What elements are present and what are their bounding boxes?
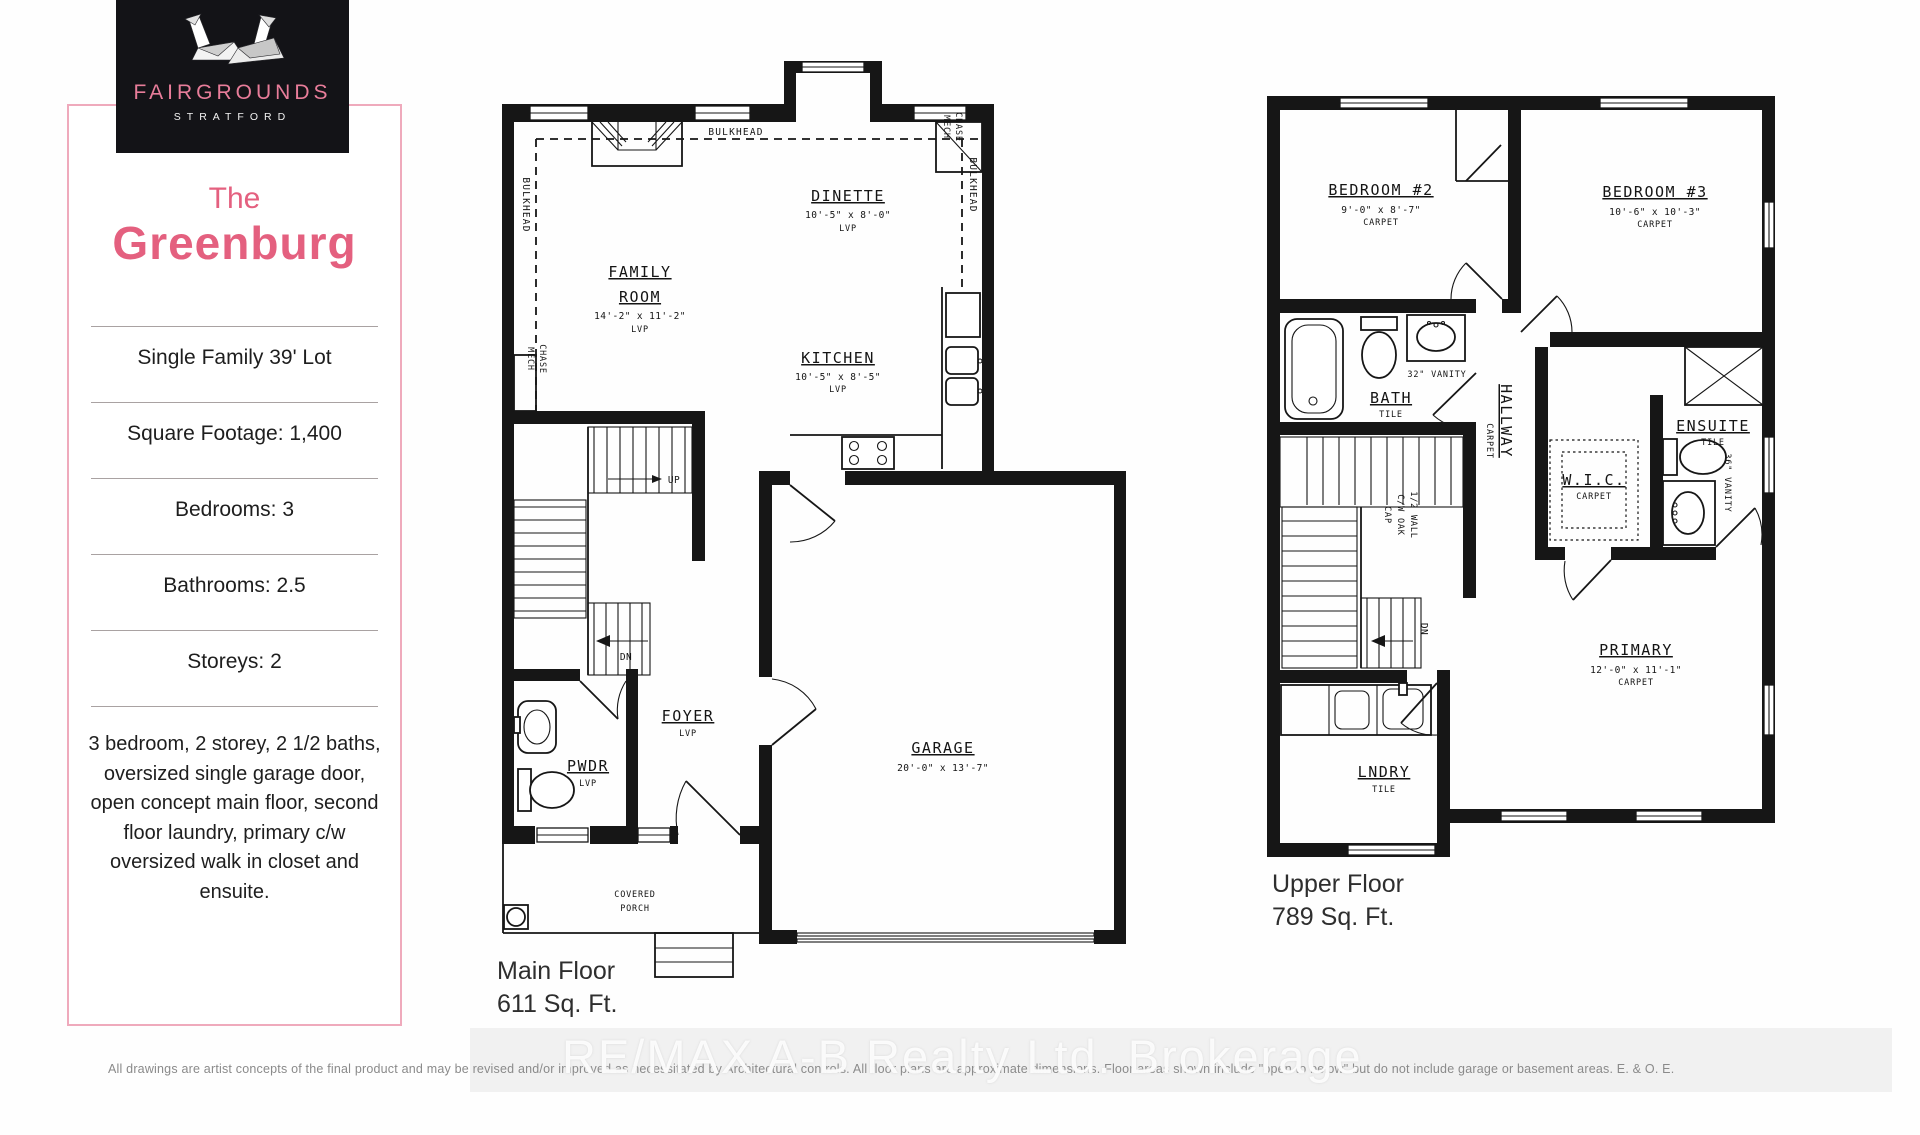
svg-text:LVP: LVP: [829, 385, 847, 395]
logo-title: FAIRGROUNDS: [116, 81, 349, 105]
fireplace-niche: [592, 122, 682, 166]
svg-text:LVP: LVP: [679, 729, 697, 739]
fairgrounds-logo: FAIRGROUNDS STRATFORD: [116, 0, 349, 153]
svg-text:ROOM: ROOM: [619, 288, 661, 306]
room-label-kitchen: KITCHEN: [801, 349, 875, 367]
divider: [91, 554, 378, 555]
main-floor-labels: BULKHEAD BULKHEAD BULKHEAD MECH CHASE ME…: [520, 112, 989, 914]
svg-text:12'-0" x 11'-1": 12'-0" x 11'-1": [1590, 665, 1682, 676]
spec-storeys: Storeys: 2: [69, 650, 400, 674]
mech-chase-label: MECH: [525, 347, 535, 371]
mech-chase-label: MECH: [941, 115, 951, 139]
spec-square-footage: Square Footage: 1,400: [69, 422, 400, 446]
room-label-laundry: LNDRY: [1358, 763, 1411, 781]
bulkhead-lines: [536, 139, 978, 411]
plan-title-prefix: The: [69, 182, 400, 216]
logo-subtitle: STRATFORD: [116, 111, 349, 123]
main-floor-plan: BULKHEAD BULKHEAD BULKHEAD MECH CHASE ME…: [490, 55, 1130, 995]
origami-swans-icon: [158, 10, 308, 74]
room-label-dinette: DINETTE: [811, 187, 885, 205]
room-label-family-room: FAMILY: [608, 263, 671, 281]
upper-floor-caption: Upper Floor 789 Sq. Ft.: [1272, 868, 1404, 934]
main-stairs: [514, 427, 692, 675]
divider: [91, 402, 378, 403]
svg-text:20'-0" x 13'-7": 20'-0" x 13'-7": [897, 763, 989, 774]
svg-text:CARPET: CARPET: [1363, 218, 1399, 228]
svg-text:LVP: LVP: [839, 224, 857, 234]
spec-bathrooms: Bathrooms: 2.5: [69, 574, 400, 598]
washer-icon: [1335, 691, 1369, 729]
svg-text:9'-0" x 8'-7": 9'-0" x 8'-7": [1341, 205, 1421, 216]
porch-steps: [655, 933, 733, 977]
upper-floor-plan: BEDROOM #2 9'-0" x 8'-7" CARPET BEDROOM …: [1261, 85, 1781, 875]
svg-text:C/W OAK: C/W OAK: [1395, 494, 1405, 536]
bath-toilet-icon: [1361, 317, 1397, 330]
pwdr-toilet-icon: [518, 769, 531, 811]
svg-text:TILE: TILE: [1379, 410, 1403, 420]
svg-text:10'-5" x 8'-0": 10'-5" x 8'-0": [805, 210, 891, 221]
svg-text:14'-2" x 11'-2": 14'-2" x 11'-2": [594, 311, 686, 322]
main-floor-caption: Main Floor 611 Sq. Ft.: [497, 955, 617, 1021]
spec-bedrooms: Bedrooms: 3: [69, 498, 400, 522]
wic-shelves: [1550, 440, 1638, 540]
mech-chase-boxes: [514, 122, 982, 411]
room-label-covered-porch: COVERED: [614, 890, 655, 900]
room-label-primary: PRIMARY: [1599, 641, 1673, 659]
room-label-ensuite: ENSUITE: [1676, 417, 1750, 435]
room-label-bedroom2: BEDROOM #2: [1328, 181, 1433, 199]
svg-text:10'-6" x 10'-3": 10'-6" x 10'-3": [1609, 207, 1701, 218]
divider: [91, 326, 378, 327]
garage-door: [797, 933, 1094, 936]
upper-stairs: [1280, 437, 1463, 668]
plan-title: Greenburg: [69, 216, 400, 270]
svg-text:CARPET: CARPET: [1637, 220, 1673, 230]
bulkhead-label: BULKHEAD: [967, 157, 978, 212]
mech-chase-label: CHASE: [953, 112, 963, 142]
svg-text:TILE: TILE: [1372, 785, 1396, 795]
svg-text:CARPET: CARPET: [1576, 492, 1612, 502]
room-label-bath: BATH: [1370, 389, 1412, 407]
svg-text:CARPET: CARPET: [1484, 423, 1494, 459]
room-label-foyer: FOYER: [662, 707, 715, 725]
dn-label: DN: [1418, 623, 1429, 635]
room-label-pwdr: PWDR: [567, 757, 609, 775]
svg-text:CAP: CAP: [1382, 506, 1392, 524]
divider: [91, 478, 378, 479]
powder-fixtures: [514, 701, 574, 811]
mech-chase-label: CHASE: [537, 344, 547, 374]
svg-text:10'-5" x 8'-5": 10'-5" x 8'-5": [795, 372, 881, 383]
brokerage-watermark: RE/MAX A-B Realty Ltd. Brokerage: [562, 1029, 1363, 1084]
ensuite-vanity-label: 36" VANITY: [1722, 453, 1732, 512]
room-label-garage: GARAGE: [911, 739, 974, 757]
svg-text:CARPET: CARPET: [1618, 678, 1654, 688]
bulkhead-label: BULKHEAD: [708, 127, 763, 138]
svg-text:PORCH: PORCH: [620, 904, 650, 914]
divider: [91, 630, 378, 631]
room-label-bedroom3: BEDROOM #3: [1602, 183, 1707, 201]
bath-vanity-label: 32" VANITY: [1407, 370, 1466, 380]
svg-text:LVP: LVP: [631, 325, 649, 335]
divider: [91, 706, 378, 707]
up-label: UP: [668, 475, 680, 486]
plan-description: 3 bedroom, 2 storey, 2 1/2 baths, oversi…: [83, 730, 386, 908]
dn-label: DN: [620, 652, 632, 663]
laundry-fixtures: [1281, 683, 1431, 735]
room-label-wic: W.I.C.: [1562, 471, 1625, 489]
room-label-hallway: HALLWAY: [1497, 384, 1515, 458]
spec-lot: Single Family 39' Lot: [69, 346, 400, 370]
svg-text:TILE: TILE: [1701, 438, 1725, 448]
main-floor-windows: [530, 62, 966, 842]
ensuite-toilet-icon: [1663, 439, 1677, 475]
half-wall-note: 1/2 WALL: [1408, 491, 1418, 538]
info-panel: The Greenburg Single Family 39' Lot Squa…: [67, 104, 402, 1026]
stove-icon: [842, 437, 894, 469]
floorplan-brochure-page: The Greenburg Single Family 39' Lot Squa…: [0, 0, 1920, 1135]
svg-text:LVP: LVP: [579, 779, 597, 789]
bulkhead-label: BULKHEAD: [520, 177, 531, 232]
